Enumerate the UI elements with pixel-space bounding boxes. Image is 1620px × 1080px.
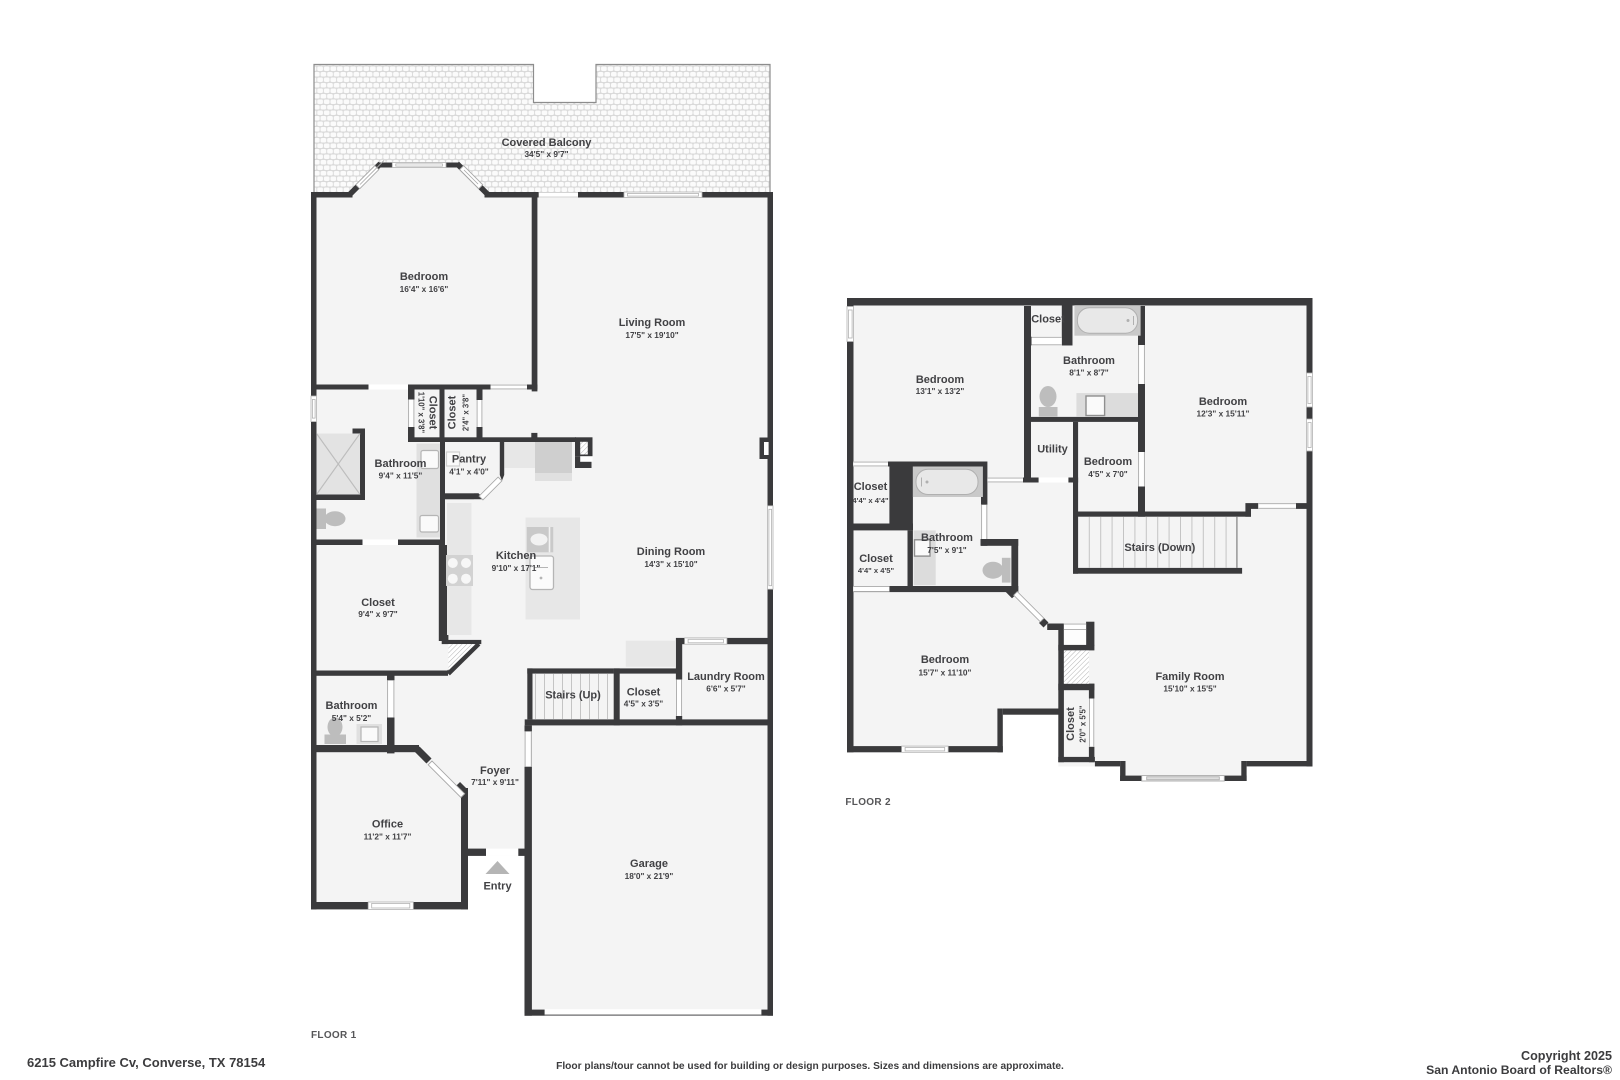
svg-text:16'4" x 16'6": 16'4" x 16'6" — [400, 284, 449, 294]
svg-text:4'4" x 4'4": 4'4" x 4'4" — [852, 496, 889, 505]
svg-text:Closet: Closet — [447, 395, 459, 429]
svg-text:FLOOR 1: FLOOR 1 — [311, 1030, 357, 1041]
svg-text:Laundry Room: Laundry Room — [687, 671, 765, 683]
svg-text:15'10" x 15'5": 15'10" x 15'5" — [1163, 684, 1216, 694]
svg-text:Living Room: Living Room — [619, 317, 686, 329]
svg-text:9'4" x 11'5": 9'4" x 11'5" — [379, 471, 423, 481]
svg-text:Bathroom: Bathroom — [375, 458, 427, 470]
svg-text:4'5" x 3'5": 4'5" x 3'5" — [624, 699, 664, 709]
svg-text:4'4" x 4'5": 4'4" x 4'5" — [858, 566, 895, 575]
svg-text:11'2" x 11'7": 11'2" x 11'7" — [364, 832, 412, 842]
svg-text:Closet: Closet — [627, 687, 661, 699]
svg-text:San Antonio Board of Realtors®: San Antonio Board of Realtors® — [1426, 1063, 1612, 1077]
svg-text:Bedroom: Bedroom — [1084, 456, 1133, 468]
svg-text:Closet: Closet — [1031, 314, 1065, 326]
svg-text:Office: Office — [372, 819, 403, 831]
svg-text:Entry: Entry — [483, 881, 512, 893]
svg-text:1'10" x 3'8": 1'10" x 3'8" — [417, 392, 426, 434]
svg-text:Closet: Closet — [427, 396, 439, 430]
svg-text:12'3" x 15'11": 12'3" x 15'11" — [1197, 409, 1250, 419]
svg-text:Garage: Garage — [630, 858, 668, 870]
svg-text:13'1" x 13'2": 13'1" x 13'2" — [916, 386, 965, 396]
svg-text:Dining Room: Dining Room — [637, 546, 706, 558]
svg-text:2'0" x 5'5": 2'0" x 5'5" — [1079, 705, 1088, 742]
svg-text:34'5" x 9'7": 34'5" x 9'7" — [524, 149, 568, 159]
svg-text:Utility: Utility — [1037, 444, 1068, 456]
svg-text:5'4" x 5'2": 5'4" x 5'2" — [332, 713, 372, 723]
svg-text:Floor plans/tour cannot be use: Floor plans/tour cannot be used for buil… — [556, 1061, 1064, 1072]
svg-text:Bathroom: Bathroom — [921, 532, 973, 544]
svg-text:Kitchen: Kitchen — [496, 550, 537, 562]
svg-text:9'10" x 17'1": 9'10" x 17'1" — [492, 563, 541, 573]
svg-text:Closet: Closet — [854, 481, 888, 493]
svg-text:Bedroom: Bedroom — [921, 654, 970, 666]
svg-text:8'1" x 8'7": 8'1" x 8'7" — [1069, 368, 1109, 378]
svg-text:Covered Balcony: Covered Balcony — [502, 137, 593, 149]
svg-text:FLOOR 2: FLOOR 2 — [845, 797, 891, 808]
svg-text:4'1" x 4'0": 4'1" x 4'0" — [449, 467, 489, 477]
svg-text:Closet: Closet — [361, 597, 395, 609]
svg-text:7'11" x 9'11": 7'11" x 9'11" — [471, 777, 519, 787]
svg-text:Closet: Closet — [1065, 707, 1077, 741]
svg-text:Stairs (Up): Stairs (Up) — [545, 689, 601, 701]
svg-text:Foyer: Foyer — [480, 765, 511, 777]
svg-text:14'3" x 15'10": 14'3" x 15'10" — [644, 559, 697, 569]
svg-text:Copyright 2025: Copyright 2025 — [1521, 1049, 1612, 1063]
svg-text:15'7" x 11'10": 15'7" x 11'10" — [919, 668, 972, 678]
svg-text:Stairs (Down): Stairs (Down) — [1124, 542, 1195, 554]
svg-text:6'6" x 5'7": 6'6" x 5'7" — [706, 684, 746, 694]
svg-text:Family Room: Family Room — [1155, 671, 1224, 683]
svg-text:Bedroom: Bedroom — [400, 271, 449, 283]
svg-text:Closet: Closet — [859, 553, 893, 565]
svg-text:17'5" x 19'10": 17'5" x 19'10" — [625, 330, 678, 340]
svg-text:Bathroom: Bathroom — [326, 700, 378, 712]
svg-text:Bedroom: Bedroom — [916, 374, 965, 386]
svg-text:4'5" x 7'0": 4'5" x 7'0" — [1088, 469, 1128, 479]
svg-text:7'5" x 9'1": 7'5" x 9'1" — [927, 545, 967, 555]
svg-text:6215 Campfire Cv, Converse, TX: 6215 Campfire Cv, Converse, TX 78154 — [27, 1055, 266, 1070]
svg-text:18'0" x 21'9": 18'0" x 21'9" — [625, 871, 674, 881]
svg-text:2'4" x 3'8": 2'4" x 3'8" — [462, 394, 471, 431]
svg-text:Pantry: Pantry — [452, 454, 487, 466]
svg-text:9'4" x 9'7": 9'4" x 9'7" — [358, 609, 398, 619]
svg-text:Bathroom: Bathroom — [1063, 355, 1115, 367]
svg-text:Bedroom: Bedroom — [1199, 396, 1248, 408]
